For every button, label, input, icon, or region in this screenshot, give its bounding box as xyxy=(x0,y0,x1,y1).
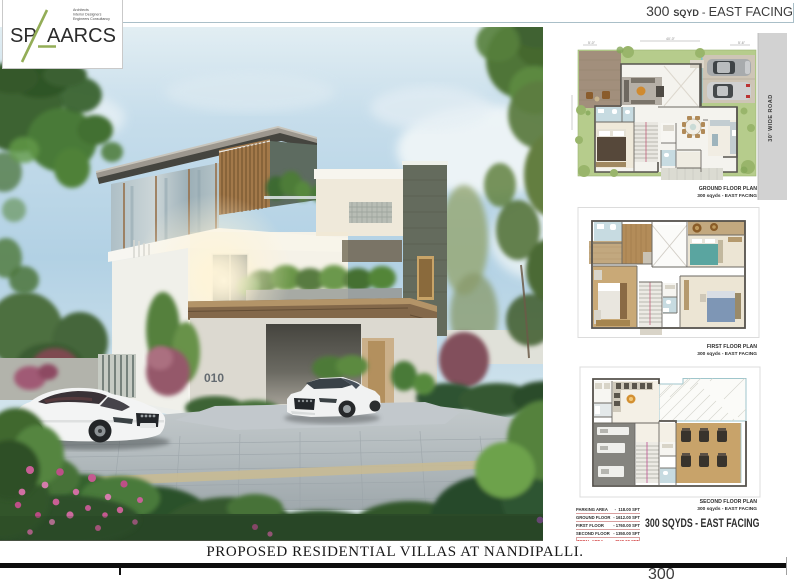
svg-text:SP: SP xyxy=(10,25,37,47)
svg-text:FIRST FLOOR PLAN: FIRST FLOOR PLAN xyxy=(707,344,757,350)
svg-text:SECOND FLOOR PLAN: SECOND FLOOR PLAN xyxy=(700,499,758,505)
svg-text:5'-0": 5'-0" xyxy=(588,41,596,45)
svg-text:300 sqyds - EAST FACING: 300 sqyds - EAST FACING xyxy=(697,506,757,512)
svg-text:Engineers Consultancy: Engineers Consultancy xyxy=(73,17,110,21)
svg-text:Architects: Architects xyxy=(73,8,89,12)
svg-text:Interior Designers: Interior Designers xyxy=(73,13,102,17)
svg-text:300 sqyds - EAST FACING: 300 sqyds - EAST FACING xyxy=(697,351,757,357)
svg-text:AARCS: AARCS xyxy=(47,25,116,47)
svg-text:010: 010 xyxy=(204,371,224,385)
svg-text:5'-6": 5'-6" xyxy=(738,41,746,45)
svg-text:300 sqyds - EAST FACING: 300 sqyds - EAST FACING xyxy=(697,193,757,199)
svg-text:30' WIDE ROAD: 30' WIDE ROAD xyxy=(768,94,774,142)
svg-text:GROUND FLOOR PLAN: GROUND FLOOR PLAN xyxy=(699,186,757,192)
svg-text:40'-0": 40'-0" xyxy=(666,37,676,41)
